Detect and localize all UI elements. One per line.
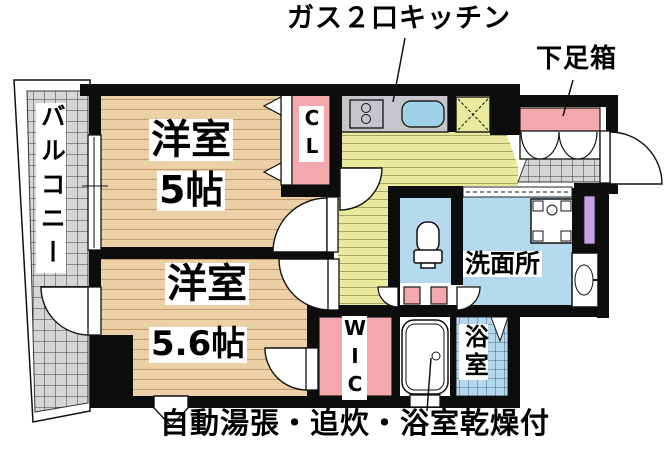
shoe-cabinet-label: 下足箱 — [536, 46, 617, 73]
bathtub-icon — [402, 320, 448, 394]
kitchen-callout-label: ガス２口キッチン — [287, 5, 511, 33]
shoe-cabinet — [520, 108, 600, 159]
balcony-label: バルコニー — [36, 103, 66, 273]
storage-purple — [584, 196, 595, 244]
room-b-label: 洋室 — [165, 263, 249, 305]
washing-machine-icon — [531, 199, 573, 243]
entrance-door — [600, 131, 662, 184]
toilet-passage — [398, 283, 453, 307]
door-post — [431, 287, 447, 304]
floor-plan: ガス２口キッチン 下足箱 バルコニー 洋室 5帖 洋室 5.6帖 CL WIC … — [0, 0, 670, 449]
fridge-space — [456, 97, 490, 132]
entrance-tiles — [518, 158, 600, 182]
closet-label: CL — [299, 106, 324, 162]
washroom-label: 洗面所 — [463, 251, 542, 277]
vanity-sink-icon — [572, 253, 599, 307]
overhead-cabinet — [463, 187, 572, 197]
wic-label: WIC — [342, 316, 367, 400]
toilet-icon — [414, 222, 442, 268]
room-a-label: 洋室 — [149, 119, 233, 161]
room-b-size: 5.6帖 — [149, 327, 247, 363]
kitchen-sink-icon — [402, 101, 444, 127]
features-note: 自動湯張・追炊・浴室乾燥付 — [160, 408, 550, 438]
room-a-size: 5帖 — [157, 171, 225, 211]
door-post — [404, 287, 420, 304]
bathroom-label: 浴室 — [459, 324, 488, 380]
